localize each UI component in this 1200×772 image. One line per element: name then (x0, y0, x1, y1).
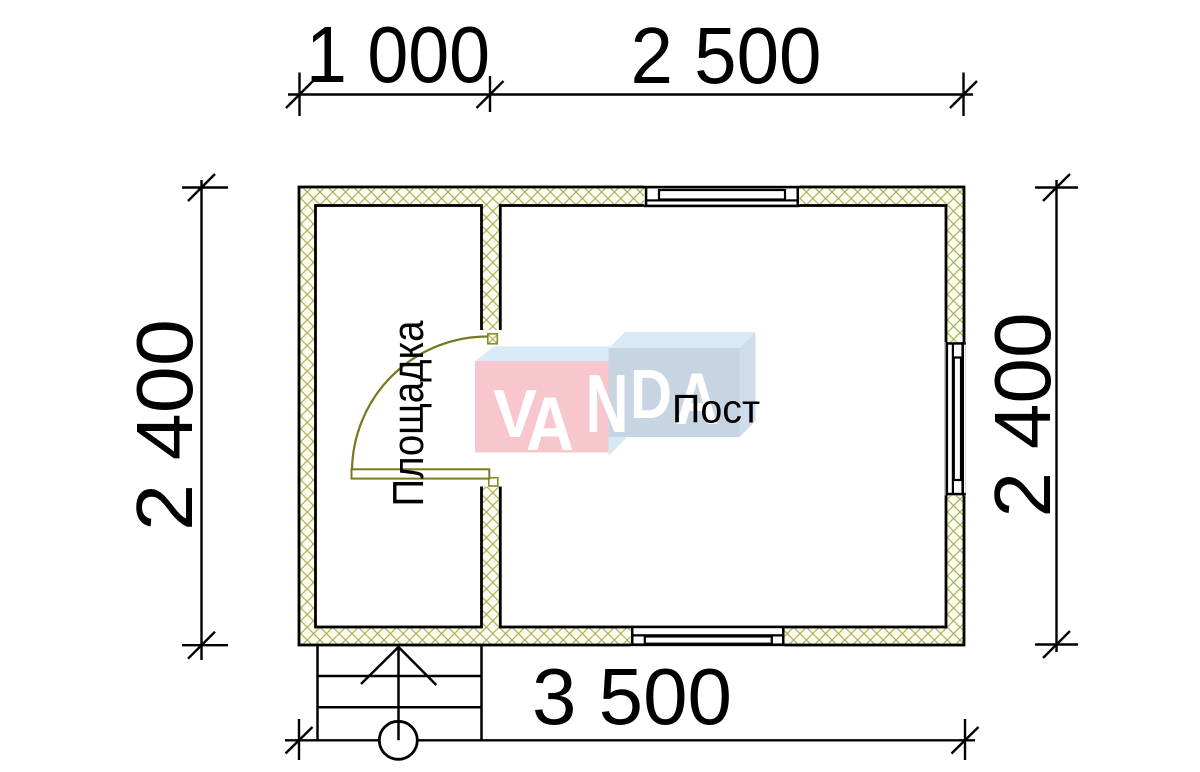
svg-text:2 400: 2 400 (978, 313, 1067, 518)
svg-text:N: N (586, 357, 629, 450)
svg-text:2 400: 2 400 (120, 319, 209, 531)
svg-text:Пост: Пост (672, 388, 760, 432)
svg-text:A: A (526, 382, 574, 467)
svg-text:D: D (630, 355, 672, 433)
svg-text:1 000: 1 000 (306, 10, 490, 99)
svg-text:2 500: 2 500 (631, 11, 822, 100)
svg-text:Площадка: Площадка (384, 320, 433, 506)
svg-text:3 500: 3 500 (532, 652, 732, 741)
